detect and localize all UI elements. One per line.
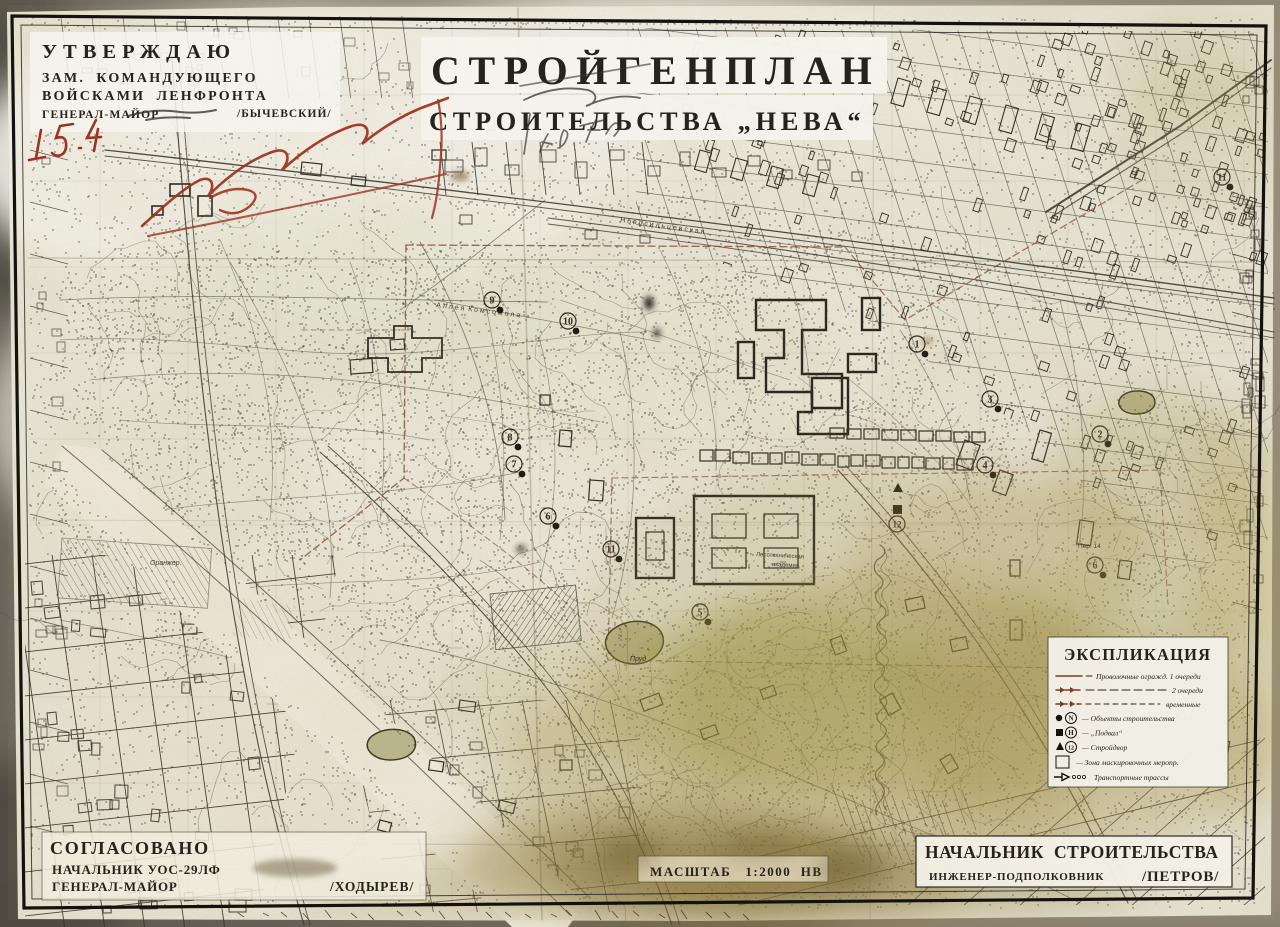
svg-text:НАЧАЛЬНИК УОС-29ЛФ: НАЧАЛЬНИК УОС-29ЛФ [52,862,221,877]
svg-text:УТВЕРЖДАЮ: УТВЕРЖДАЮ [42,41,236,63]
svg-text:СТРОЙГЕНПЛАН: СТРОЙГЕНПЛАН [431,48,880,93]
svg-text:2 очереди: 2 очереди [1172,686,1203,695]
svg-text:ГЕНЕРАЛ-МАЙОР: ГЕНЕРАЛ-МАЙОР [42,107,160,121]
svg-text:СОГЛАСОВАНО: СОГЛАСОВАНО [50,838,210,858]
svg-text:Транспортные трассы: Транспортные трассы [1094,773,1169,782]
svg-text:Пер. 14: Пер. 14 [1078,543,1101,550]
svg-text:12: 12 [1068,746,1074,752]
svg-text:МАСШТАБ 1:2000 НВ: МАСШТАБ 1:2000 НВ [650,864,823,879]
svg-text:Проволочные огражд. 1 очереди: Проволочные огражд. 1 очереди [1095,672,1201,681]
svg-text:НАЧАЛЬНИК СТРОИТЕЛЬСТВА: НАЧАЛЬНИК СТРОИТЕЛЬСТВА [925,842,1219,862]
svg-text:ЗАМ. КОМАНДУЮЩЕГО: ЗАМ. КОМАНДУЮЩЕГО [42,71,258,86]
svg-text:— „Подвал“: — „Подвал“ [1081,729,1122,738]
svg-text:временные: временные [1166,700,1201,709]
svg-text:ЭКСПЛИКАЦИЯ: ЭКСПЛИКАЦИЯ [1064,645,1211,664]
svg-text:/ПЕТРОВ/: /ПЕТРОВ/ [1141,869,1219,885]
svg-text:Н: Н [1068,729,1074,737]
svg-text:ГЕНЕРАЛ-МАЙОР: ГЕНЕРАЛ-МАЙОР [52,879,178,894]
svg-text:Пруд: Пруд [630,655,646,663]
svg-text:— Объекты строительства: — Объекты строительства [1081,714,1175,723]
svg-text:— Стройдвор: — Стройдвор [1081,743,1128,752]
svg-text:СТРОИТЕЛЬСТВА „НЕВА“: СТРОИТЕЛЬСТВА „НЕВА“ [429,106,865,136]
svg-text:/БЫЧЕВСКИЙ/: /БЫЧЕВСКИЙ/ [236,106,332,120]
svg-text:Оранжер.: Оранжер. [150,560,182,567]
svg-text:ИНЖЕНЕР-ПОДПОЛКОВНИК: ИНЖЕНЕР-ПОДПОЛКОВНИК [929,871,1104,883]
svg-text:ВОЙСКАМИ ЛЕНФРОНТА: ВОЙСКАМИ ЛЕНФРОНТА [42,87,268,104]
svg-text:N: N [1068,715,1073,723]
svg-text:— Зона маскировочных меропр.: — Зона маскировочных меропр. [1075,758,1179,767]
svg-text:/ХОДЫРЕВ/: /ХОДЫРЕВ/ [329,879,414,894]
